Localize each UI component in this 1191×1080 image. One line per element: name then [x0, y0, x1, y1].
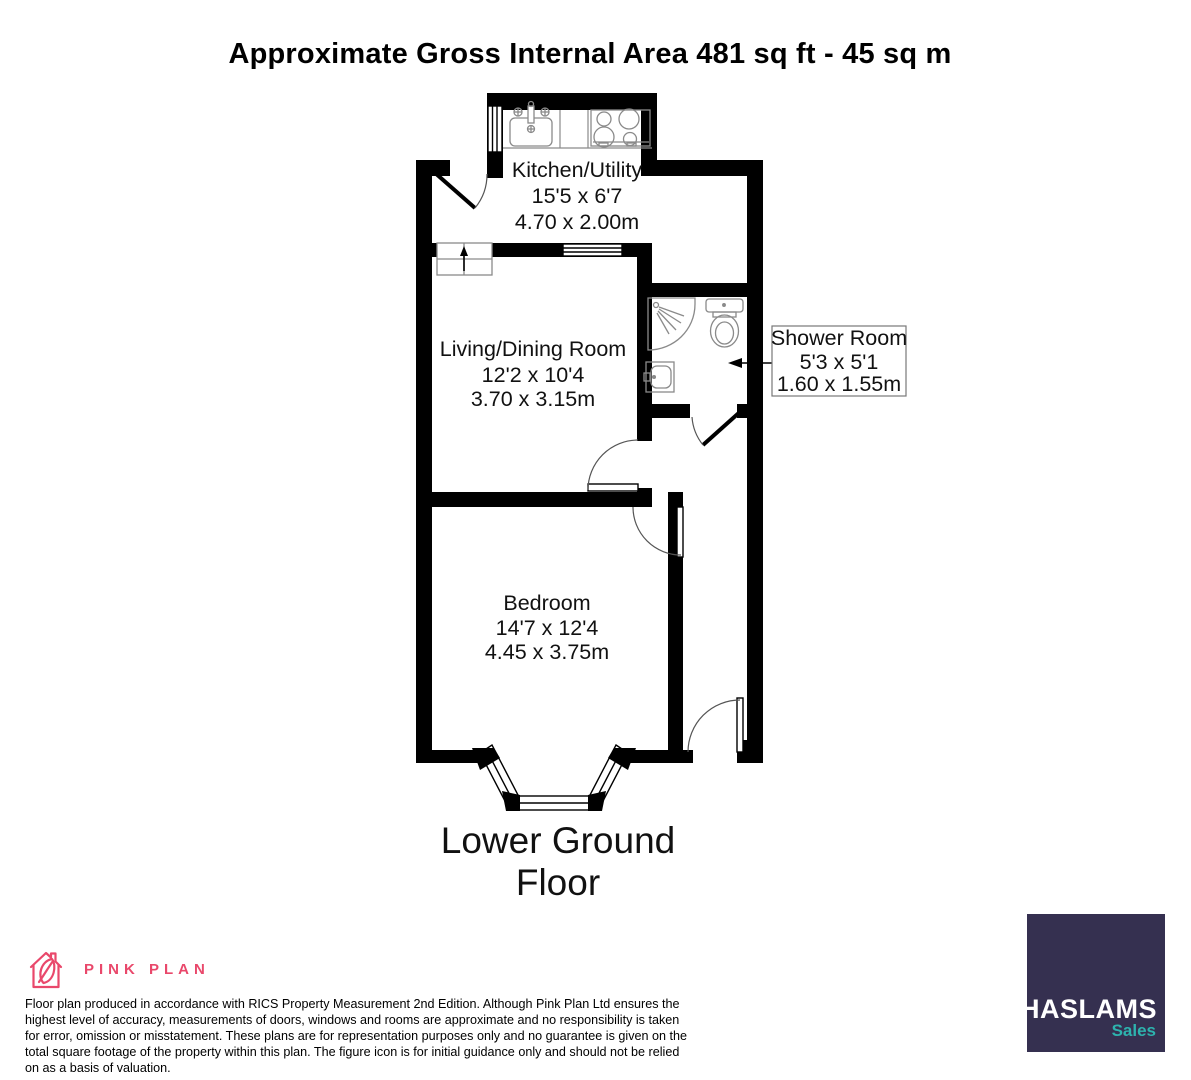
toilet-icon: [706, 299, 743, 347]
window-kitchen: [488, 106, 502, 152]
pink-plan-house-icon: [26, 946, 66, 992]
window-living: [563, 244, 622, 256]
agent-logo: HASLAMS Sales: [1027, 914, 1165, 1052]
agent-name: HASLAMS: [1020, 996, 1157, 1022]
living-room-door: [588, 440, 638, 491]
callout-arrow: [728, 358, 742, 368]
bedroom-name: Bedroom: [503, 591, 590, 615]
shower-room-imperial: 5'3 x 5'1: [800, 350, 879, 374]
floorplan-page: Approximate Gross Internal Area 481 sq f…: [0, 0, 1191, 1080]
bay-window: [480, 745, 628, 810]
bedroom-imperial: 14'7 x 12'4: [496, 616, 599, 640]
bedroom-metric: 4.45 x 3.75m: [485, 640, 609, 664]
kitchen-metric: 4.70 x 2.00m: [515, 210, 639, 234]
floor-plan: Shower Room 5'3 x 5'1 1.60 x 1.55m Kitch…: [0, 0, 1191, 900]
disclaimer-text: Floor plan produced in accordance with R…: [25, 997, 693, 1077]
floor-label: Lower Ground Floor: [398, 820, 718, 904]
hall-door: [692, 411, 741, 445]
producer-brand: PINK PLAN: [26, 946, 210, 992]
shower-icon: [648, 298, 695, 350]
entry-door: [434, 172, 487, 208]
producer-name: PINK PLAN: [84, 961, 210, 978]
agent-tagline: Sales: [1112, 1022, 1156, 1040]
kitchen-imperial: 15'5 x 6'7: [532, 184, 623, 208]
stairs-icon: [437, 243, 492, 275]
exterior-corridor-door: [688, 698, 743, 752]
shower-room-name: Shower Room: [771, 326, 907, 350]
shower-room-metric: 1.60 x 1.55m: [777, 372, 901, 396]
sink-icon: [510, 102, 552, 147]
room-labels: Kitchen/Utility 15'5 x 6'7 4.70 x 2.00m …: [440, 158, 643, 664]
living-metric: 3.70 x 3.15m: [471, 387, 595, 411]
living-name: Living/Dining Room: [440, 337, 626, 361]
kitchen-name: Kitchen/Utility: [512, 158, 642, 182]
living-imperial: 12'2 x 10'4: [482, 363, 585, 387]
